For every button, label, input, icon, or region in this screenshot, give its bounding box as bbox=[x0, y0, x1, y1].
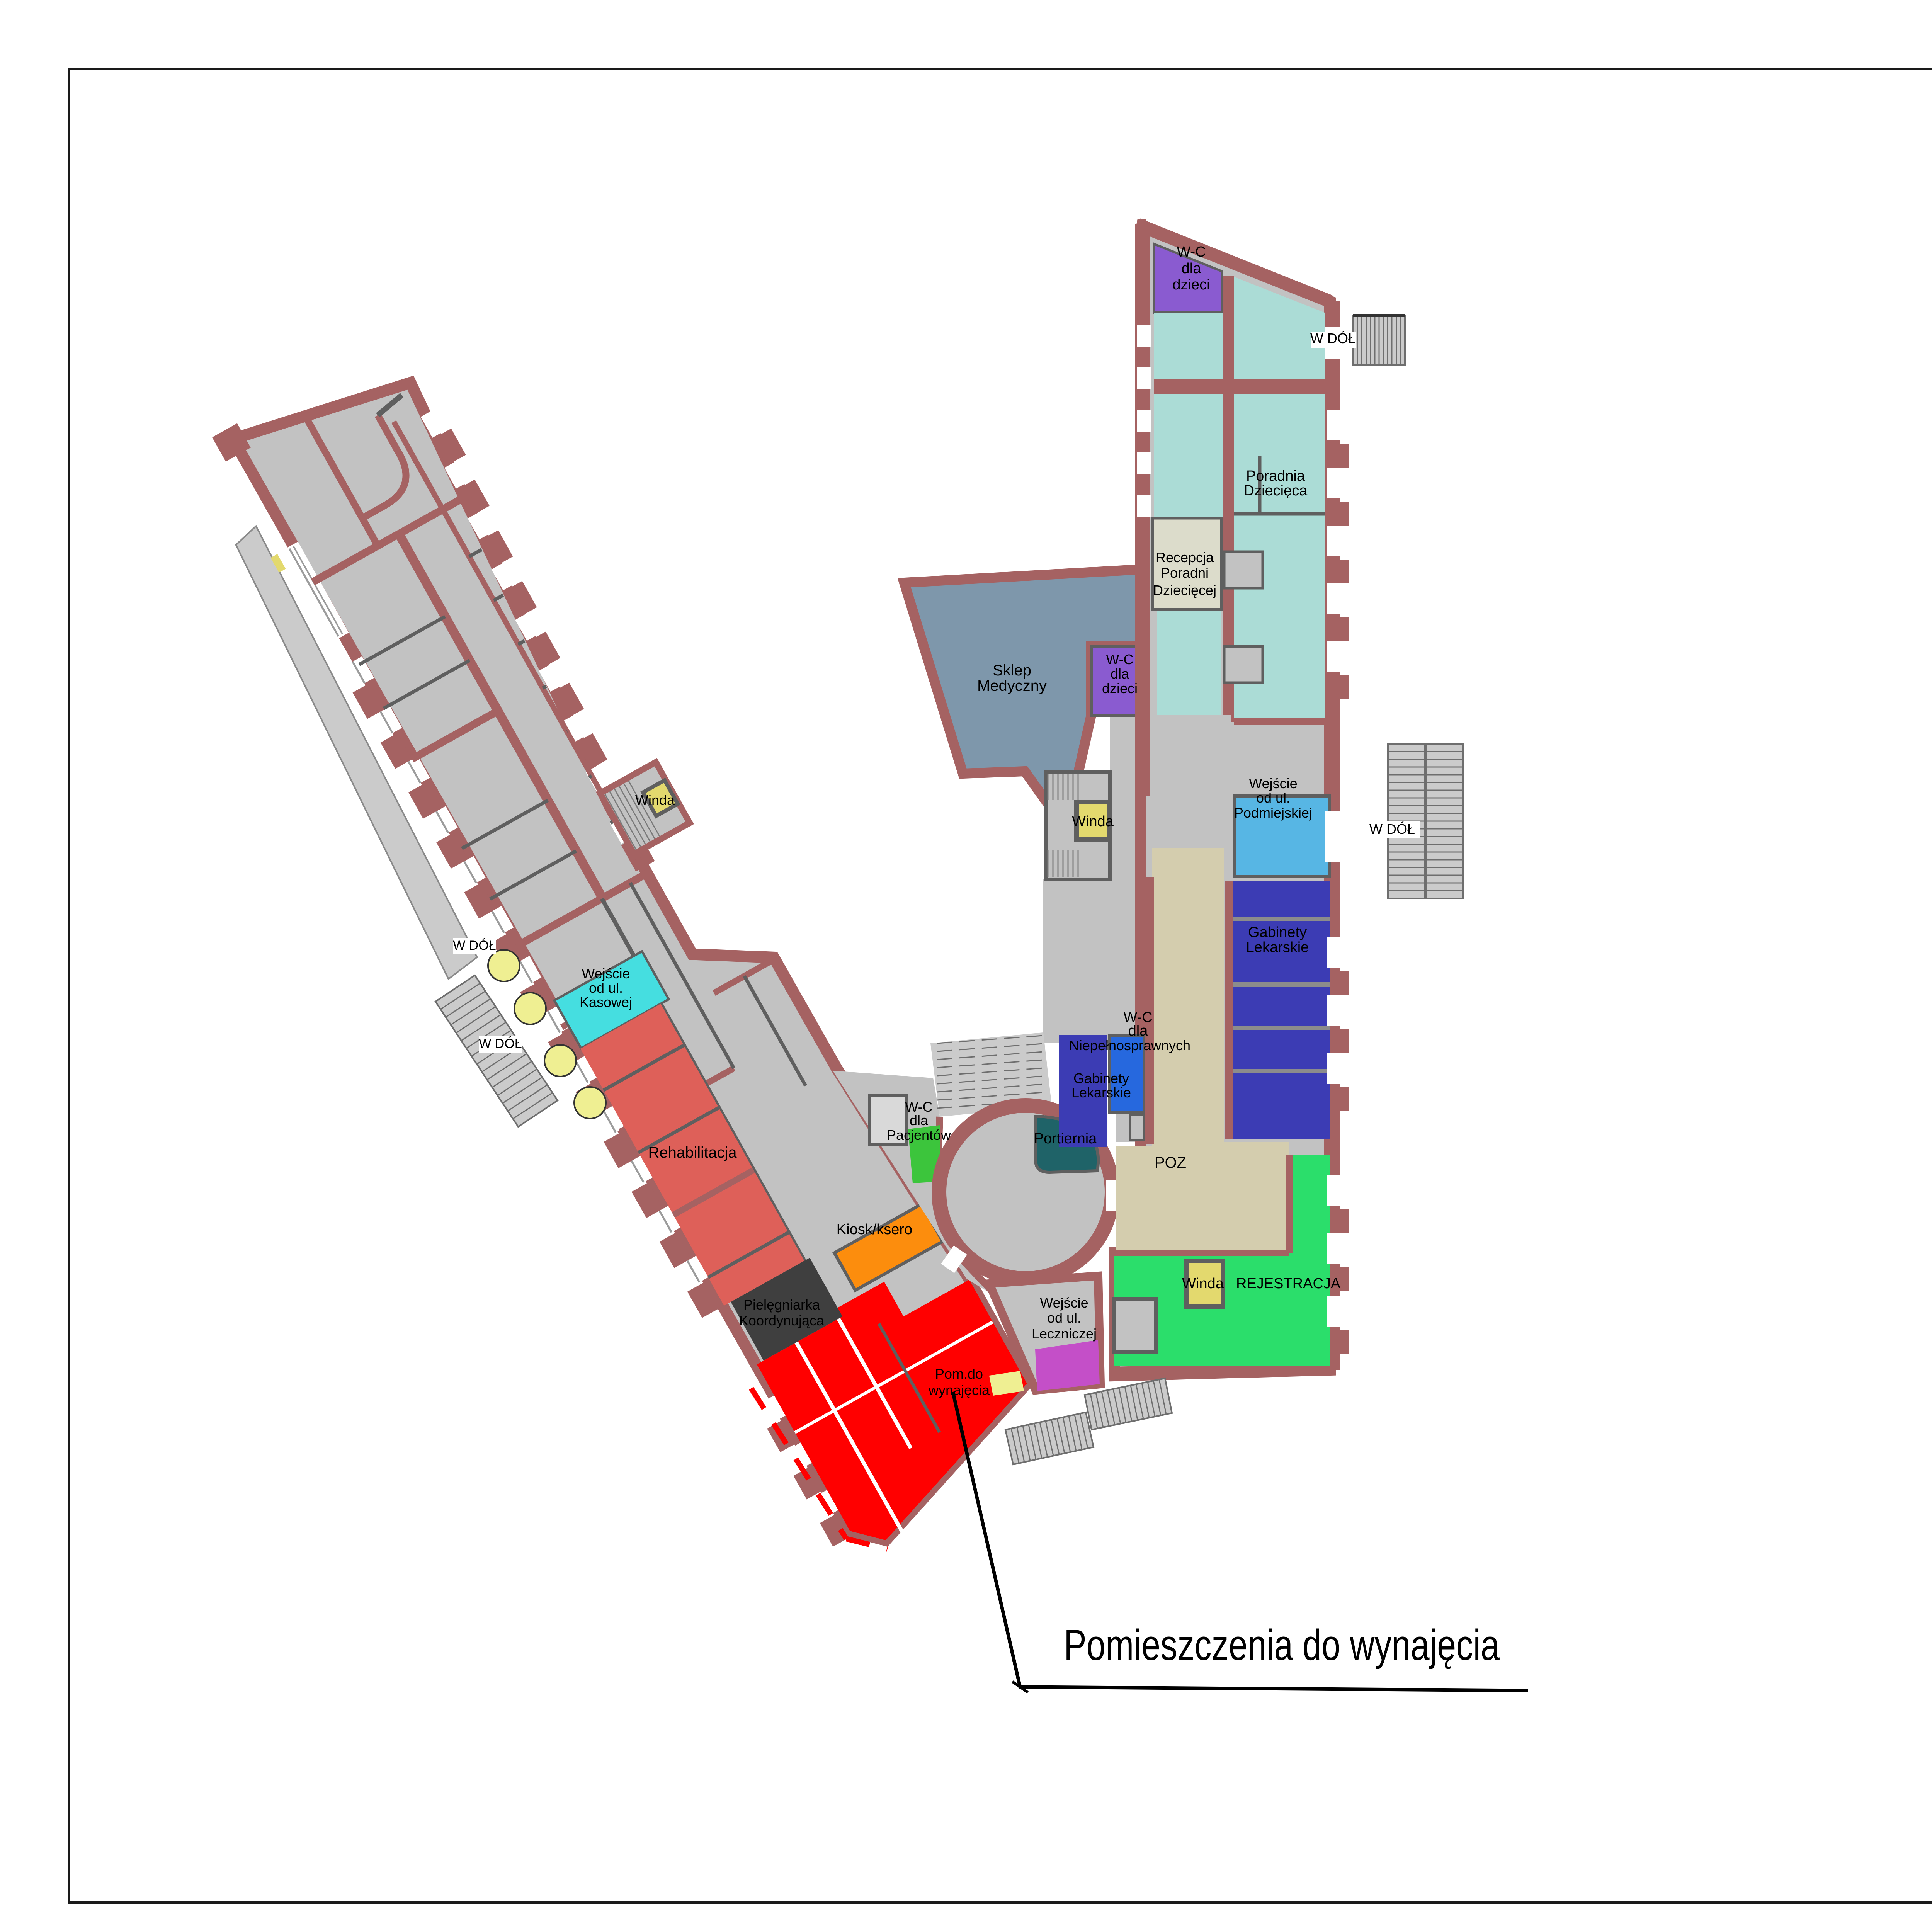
svg-text:Leczniczej: Leczniczej bbox=[1032, 1326, 1097, 1342]
svg-text:Kasowej: Kasowej bbox=[580, 994, 632, 1010]
svg-text:POZ: POZ bbox=[1155, 1154, 1186, 1171]
svg-text:dzieci: dzieci bbox=[1102, 680, 1138, 696]
svg-text:Pacjentów: Pacjentów bbox=[887, 1127, 951, 1143]
svg-text:Winda: Winda bbox=[635, 792, 675, 808]
svg-text:od ul.: od ul. bbox=[1256, 790, 1290, 806]
svg-text:wynajęcia: wynajęcia bbox=[928, 1382, 990, 1398]
svg-text:Pielęgniarka: Pielęgniarka bbox=[743, 1297, 820, 1313]
svg-text:Koordynująca: Koordynująca bbox=[739, 1313, 825, 1328]
svg-text:Portiernia: Portiernia bbox=[1034, 1131, 1097, 1147]
svg-text:Niepełnosprawnych: Niepełnosprawnych bbox=[1069, 1037, 1190, 1053]
svg-text:dzieci: dzieci bbox=[1172, 277, 1210, 293]
svg-text:Pom.do: Pom.do bbox=[935, 1366, 983, 1382]
svg-text:Wejście: Wejście bbox=[582, 966, 630, 981]
svg-text:W DÓŁ: W DÓŁ bbox=[1369, 821, 1415, 837]
svg-text:dla: dla bbox=[1182, 260, 1202, 277]
svg-text:Poradni: Poradni bbox=[1161, 565, 1209, 581]
svg-text:Rehabilitacja: Rehabilitacja bbox=[648, 1144, 737, 1161]
svg-text:Dziecięcej: Dziecięcej bbox=[1153, 582, 1216, 598]
svg-text:Wejście: Wejście bbox=[1040, 1295, 1088, 1311]
svg-text:Podmiejskiej: Podmiejskiej bbox=[1234, 805, 1312, 821]
svg-text:Recepcja: Recepcja bbox=[1156, 549, 1214, 565]
svg-text:Winda: Winda bbox=[1072, 813, 1114, 830]
svg-text:W-C: W-C bbox=[1177, 244, 1206, 260]
svg-text:Kiosk/ksero: Kiosk/ksero bbox=[837, 1221, 912, 1238]
svg-text:Winda: Winda bbox=[1182, 1276, 1224, 1292]
svg-text:Sklep: Sklep bbox=[993, 662, 1031, 679]
svg-text:od ul.: od ul. bbox=[1047, 1310, 1081, 1326]
svg-text:W DÓŁ: W DÓŁ bbox=[479, 1036, 522, 1051]
svg-text:W DÓŁ: W DÓŁ bbox=[453, 938, 496, 953]
svg-text:od ul.: od ul. bbox=[589, 980, 623, 996]
svg-text:Lekarskie: Lekarskie bbox=[1246, 939, 1309, 956]
svg-text:W-C: W-C bbox=[1106, 651, 1133, 667]
svg-text:Dziecięca: Dziecięca bbox=[1244, 483, 1308, 499]
svg-text:Gabinety: Gabinety bbox=[1248, 924, 1307, 940]
svg-text:dla: dla bbox=[1128, 1023, 1148, 1039]
svg-text:Lekarskie: Lekarskie bbox=[1071, 1085, 1131, 1100]
svg-text:Wejście: Wejście bbox=[1249, 776, 1297, 791]
svg-text:Gabinety: Gabinety bbox=[1073, 1070, 1129, 1086]
svg-text:Pomieszczenia do wynajęcia: Pomieszczenia do wynajęcia bbox=[1064, 1621, 1500, 1669]
svg-text:REJESTRACJA: REJESTRACJA bbox=[1236, 1276, 1341, 1292]
svg-text:dla: dla bbox=[1111, 666, 1129, 682]
svg-text:Medyczny: Medyczny bbox=[977, 677, 1047, 694]
svg-text:Poradnia: Poradnia bbox=[1246, 468, 1305, 484]
svg-text:dla: dla bbox=[910, 1112, 929, 1128]
svg-text:W DÓŁ: W DÓŁ bbox=[1310, 330, 1356, 346]
